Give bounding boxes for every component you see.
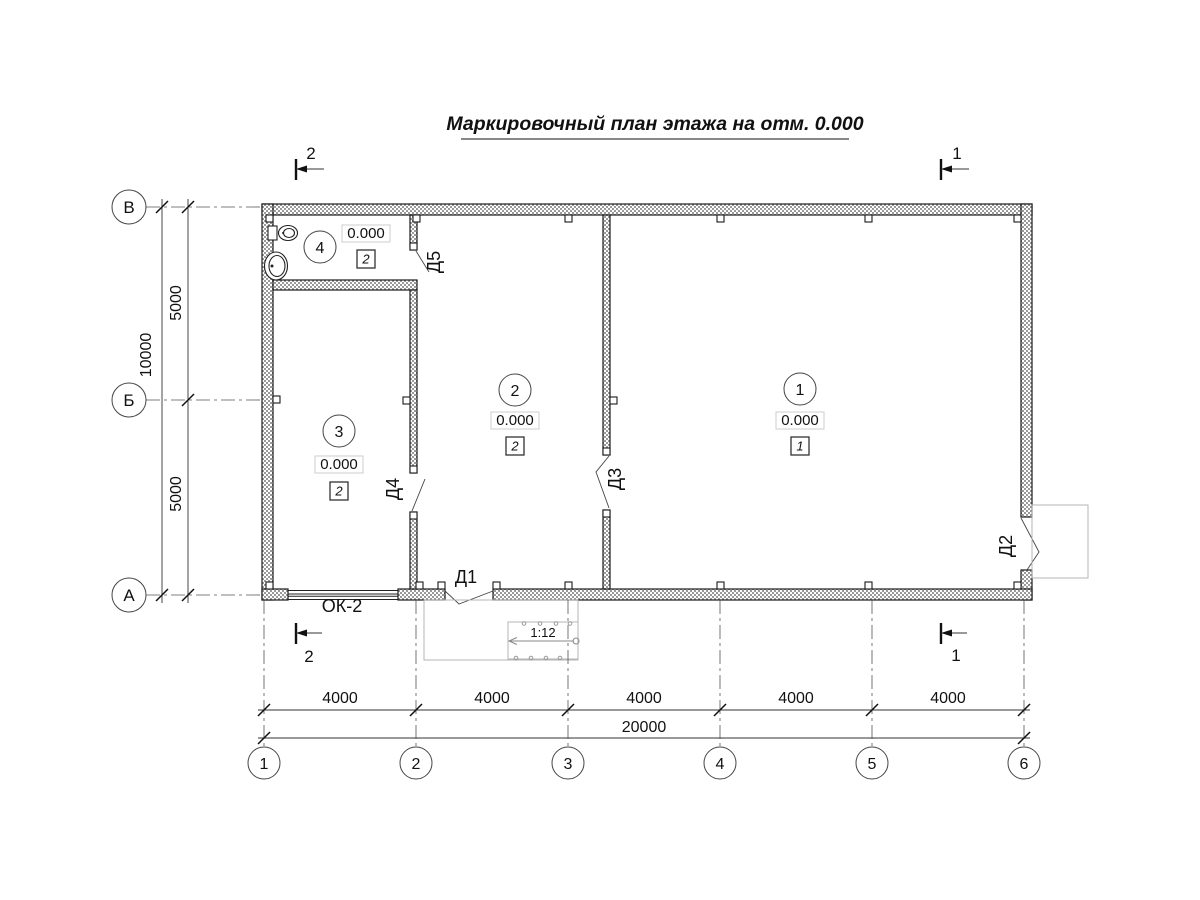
room-4-number: 4 xyxy=(316,240,325,257)
door-d3-label: Д3 xyxy=(605,468,625,490)
dim-left-5000-lower: 5000 xyxy=(168,476,185,512)
door-d1: Д1 xyxy=(445,567,493,604)
section-mark-top-right: 1 xyxy=(941,144,969,180)
dim-bottom-4000-5: 4000 xyxy=(930,690,966,707)
room-3-level: 0.000 xyxy=(320,456,358,473)
dim-bottom-4000-4: 4000 xyxy=(778,690,814,707)
wall-room4-bottom xyxy=(273,280,417,290)
row-axis-circles: В Б А xyxy=(112,190,146,612)
row-axis-lines xyxy=(146,207,262,595)
door-d4: Д4 xyxy=(383,478,425,511)
wall-bottom-mid xyxy=(398,589,445,600)
axis-row-v: В xyxy=(123,198,134,217)
drawing-title: Маркировочный план этажа на отм. 0.000 xyxy=(446,113,863,135)
bottom-dimension-lines: 4000 4000 4000 4000 4000 20000 xyxy=(258,690,1030,744)
axis-col-6: 6 xyxy=(1020,756,1029,773)
room-1-level: 0.000 xyxy=(781,412,819,429)
dim-bottom-4000-3: 4000 xyxy=(626,690,662,707)
axis-col-4: 4 xyxy=(716,756,725,773)
room-1-number: 1 xyxy=(796,382,805,399)
axis-col-5: 5 xyxy=(868,756,877,773)
sink-fixture xyxy=(265,252,288,280)
wall-room2-right-lower xyxy=(603,510,610,589)
axis-col-3: 3 xyxy=(564,756,573,773)
section-2-label-bottom: 2 xyxy=(304,647,313,666)
plan-canvas: Маркировочный план этажа на отм. 0.000 xyxy=(0,0,1200,900)
side-porch xyxy=(1032,505,1088,578)
dim-bottom-4000-2: 4000 xyxy=(474,690,510,707)
wall-bottom-right xyxy=(493,589,1032,600)
section-mark-top-left: 2 xyxy=(296,144,324,180)
floor-plan-drawing: Маркировочный план этажа на отм. 0.000 xyxy=(0,0,1200,900)
room-2-annotation: 2 0.000 2 xyxy=(491,374,539,455)
section-1-label-top: 1 xyxy=(952,144,961,163)
wall-room3-right-lower xyxy=(410,512,417,589)
toilet-fixture xyxy=(268,226,298,241)
door-d2: Д2 xyxy=(996,518,1039,570)
door-d3: Д3 xyxy=(596,456,625,508)
door-d1-label: Д1 xyxy=(455,567,477,587)
wall-room3-right-upper xyxy=(410,290,417,473)
room-2-level: 0.000 xyxy=(496,412,534,429)
room-2-number: 2 xyxy=(511,383,520,400)
room-4-level: 0.000 xyxy=(347,225,385,242)
door-d5: Д5 xyxy=(416,251,444,273)
room-3-floor-type: 2 xyxy=(334,484,343,499)
wall-bottom-left xyxy=(262,589,288,600)
ramp-slope-label: 1:12 xyxy=(530,625,555,640)
room-4-floor-type: 2 xyxy=(361,252,370,267)
axis-col-1: 1 xyxy=(260,756,269,773)
axis-row-a: А xyxy=(123,586,135,605)
door-d5-label: Д5 xyxy=(424,251,444,273)
pilasters xyxy=(266,215,1021,589)
col-axis-circles: 1 2 3 4 5 6 xyxy=(248,747,1040,779)
door-d4-label: Д4 xyxy=(383,478,403,500)
room-3-annotation: 3 0.000 2 xyxy=(315,415,363,500)
dim-bottom-20000: 20000 xyxy=(622,719,667,736)
room-3-number: 3 xyxy=(335,424,344,441)
section-2-label-top: 2 xyxy=(306,144,315,163)
room-1-annotation: 1 0.000 1 xyxy=(776,373,824,455)
section-mark-bottom-right: 1 xyxy=(941,623,967,665)
wall-right-upper xyxy=(1021,204,1032,517)
dim-left-5000-upper: 5000 xyxy=(168,285,185,321)
wall-room2-right-upper xyxy=(603,215,610,455)
room-1-floor-type: 1 xyxy=(796,439,803,454)
axis-col-2: 2 xyxy=(412,756,421,773)
section-mark-bottom-left: 2 xyxy=(296,623,322,666)
dim-left-10000: 10000 xyxy=(138,333,155,378)
door-d2-label: Д2 xyxy=(996,535,1016,557)
wall-top xyxy=(262,204,1032,215)
dim-bottom-4000-1: 4000 xyxy=(322,690,358,707)
room-4-annotation: 4 0.000 2 xyxy=(304,225,390,268)
room-2-floor-type: 2 xyxy=(510,439,519,454)
axis-row-b: Б xyxy=(123,391,134,410)
window-ok2-label: ОК-2 xyxy=(322,596,363,616)
section-1-label-bottom: 1 xyxy=(951,646,960,665)
